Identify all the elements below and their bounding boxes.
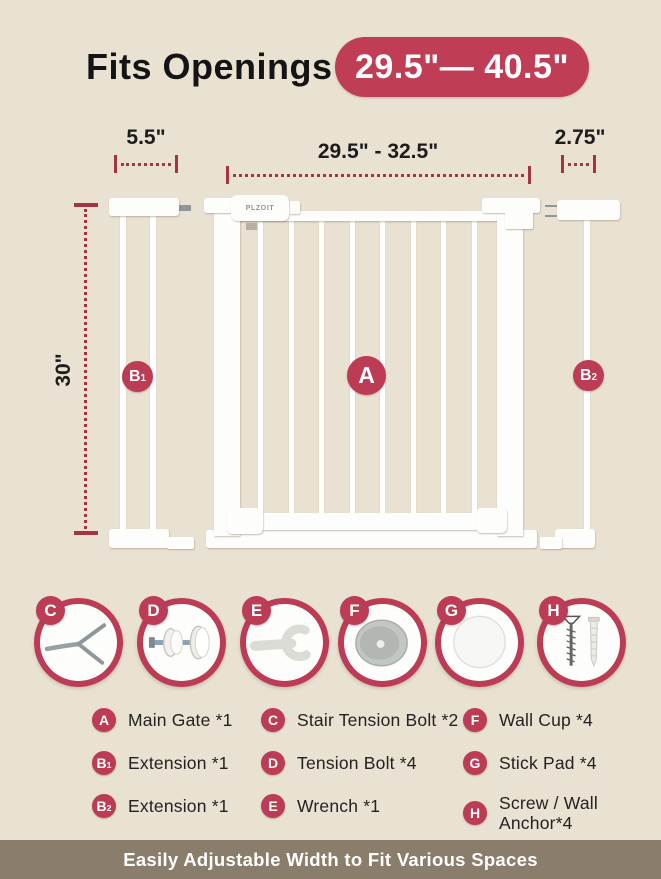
badge-letter: E [268, 798, 277, 814]
dim-line-right [561, 155, 596, 173]
badge-letter: B [97, 755, 107, 771]
dim-tick [74, 203, 98, 207]
legend-row-wall-cup: F Wall Cup *4 [463, 707, 661, 733]
badge-letter: B [580, 367, 592, 385]
legend-label: Screw / Wall Anchor*4 [499, 793, 661, 833]
legend-label: Tension Bolt *4 [297, 753, 417, 773]
gate-bar [472, 219, 477, 516]
gate-bar [258, 219, 263, 516]
gate-latch-detail [246, 223, 257, 230]
badge-letter: A [99, 712, 109, 728]
footer-banner: Easily Adjustable Width to Fit Various S… [0, 840, 661, 879]
badge-letter: G [445, 601, 458, 621]
b2-top-connector [557, 200, 620, 220]
badge-letter: H [547, 601, 559, 621]
dim-dots [568, 163, 589, 166]
gate-bar [289, 219, 294, 516]
legend-column-3: F Wall Cup *4 G Stick Pad *4 H Screw / W… [463, 707, 661, 850]
legend-badge-c: C [261, 708, 285, 732]
legend-badge-b1: B1 [92, 751, 116, 775]
badge-letter: H [470, 805, 480, 821]
gate-bar [441, 219, 446, 516]
legend-label: Wrench *1 [297, 796, 380, 816]
legend-row-screw-anchor: H Screw / Wall Anchor*4 [463, 793, 661, 833]
part-badge-e: E [242, 596, 271, 625]
b1-foot [109, 529, 169, 548]
badge-letter: G [470, 755, 481, 771]
dim-tick [593, 155, 596, 173]
legend-row-wrench: E Wrench *1 [261, 793, 458, 819]
dim-label-right-extension: 2.75" [540, 126, 620, 150]
badge-letter: B [129, 368, 141, 386]
b1-top-bar [109, 198, 179, 216]
door-bottom-right-cap [476, 508, 507, 533]
dim-line-height [74, 203, 98, 535]
legend-badge-d: D [261, 751, 285, 775]
badge-letter: D [147, 601, 159, 621]
dim-line-left [114, 155, 178, 173]
page-title: Fits Openings [86, 46, 333, 88]
dim-tick [175, 155, 178, 173]
badge-letter: C [268, 712, 278, 728]
legend-badge-b2: B2 [92, 794, 116, 818]
dim-label-gate-width: 29.5" - 32.5" [268, 140, 488, 164]
footer-text: Easily Adjustable Width to Fit Various S… [123, 849, 538, 871]
badge-letter: A [358, 362, 375, 389]
legend-row-tension-bolt: D Tension Bolt *4 [261, 750, 458, 776]
part-badge-h: H [539, 596, 568, 625]
badge-b1: B1 [122, 361, 153, 392]
gate-bar [411, 219, 416, 516]
gate-latch-tab [289, 201, 300, 214]
badge-sub: 2 [592, 372, 598, 383]
door-bottom-rail [237, 513, 505, 530]
badge-letter: B [97, 798, 107, 814]
dim-tick [528, 166, 531, 184]
legend-label: Main Gate *1 [128, 710, 233, 730]
part-badge-f: F [340, 596, 369, 625]
legend-label: Extension *1 [128, 753, 229, 773]
legend-badge-f: F [463, 708, 487, 732]
badge-a: A [347, 356, 386, 395]
b1-pin [179, 205, 191, 211]
dim-tick [226, 166, 229, 184]
legend-badge-e: E [261, 794, 285, 818]
legend-label: Extension *1 [128, 796, 229, 816]
legend-badge-a: A [92, 708, 116, 732]
badge-letter: F [349, 601, 359, 621]
dim-tick [561, 155, 564, 173]
legend-row-extension-b1: B1 Extension *1 [92, 750, 233, 776]
dim-label-height: 30" [52, 342, 76, 398]
legend-column-2: C Stair Tension Bolt *2 D Tension Bolt *… [261, 707, 458, 836]
part-badge-d: D [139, 596, 168, 625]
badge-letter: F [471, 712, 480, 728]
part-badge-g: G [437, 596, 466, 625]
gate-latch-handle: PLZOIT [231, 195, 289, 221]
legend-label: Stair Tension Bolt *2 [297, 710, 458, 730]
dim-tick [114, 155, 117, 173]
legend-label: Stick Pad *4 [499, 753, 661, 773]
dim-dots [233, 174, 524, 177]
legend-badge-h: H [463, 801, 487, 825]
badge-letter: D [268, 755, 278, 771]
legend-column-1: A Main Gate *1 B1 Extension *1 B2 Extens… [92, 707, 233, 836]
legend-label: Wall Cup *4 [499, 710, 661, 730]
gate-left-post [214, 205, 240, 536]
gate-right-top-cap [482, 198, 540, 213]
legend-row-stair-tension-bolt: C Stair Tension Bolt *2 [261, 707, 458, 733]
legend-row-extension-b2: B2 Extension *1 [92, 793, 233, 819]
gate-right-cap-notch [505, 212, 533, 229]
badge-b2: B2 [573, 360, 604, 391]
fits-range-badge: 29.5"— 40.5" [335, 37, 589, 97]
legend-row-stick-pad: G Stick Pad *4 [463, 750, 661, 776]
dim-tick [74, 531, 98, 535]
dim-dots [84, 209, 87, 529]
gate-right-post [497, 205, 523, 536]
part-badge-c: C [36, 596, 65, 625]
dim-label-left-extension: 5.5" [106, 126, 186, 150]
badge-sub: 2 [107, 803, 112, 813]
infographic-canvas: Fits Openings 29.5"— 40.5" 5.5" 29.5" - … [0, 0, 661, 879]
dim-dots [121, 163, 171, 166]
door-bottom-left-cap [227, 508, 263, 534]
badge-sub: 1 [107, 760, 112, 770]
dim-line-middle [226, 166, 531, 184]
brand-label: PLZOIT [231, 195, 289, 221]
b2-foot-step [540, 537, 562, 549]
b1-foot-step [167, 537, 194, 549]
legend-badge-g: G [463, 751, 487, 775]
badge-sub: 1 [141, 373, 147, 384]
gate-bar [319, 219, 324, 516]
legend-row-main-gate: A Main Gate *1 [92, 707, 233, 733]
badge-letter: E [251, 601, 262, 621]
badge-letter: C [44, 601, 56, 621]
